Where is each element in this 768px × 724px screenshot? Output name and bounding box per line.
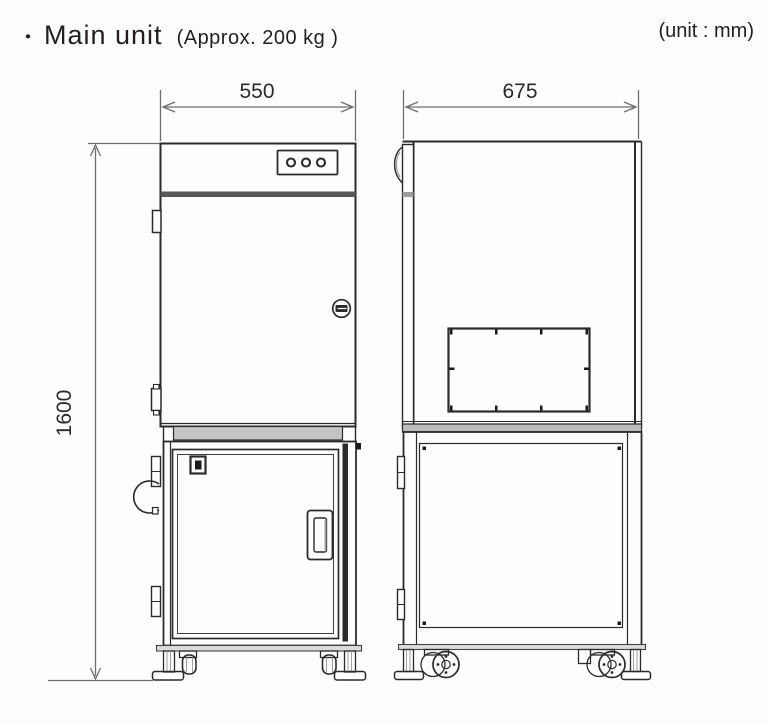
caster-icon — [421, 650, 459, 678]
unit-note: (unit : mm) — [658, 20, 754, 43]
front-bottom-rail — [157, 646, 362, 652]
side-door-edge — [395, 145, 414, 429]
front-upper-body — [161, 144, 356, 427]
side-lower-unit — [404, 432, 642, 646]
front-lower-cabinet — [164, 442, 362, 646]
vent-panel — [449, 329, 590, 412]
title-text: Main unit — [44, 20, 163, 51]
left-side-fittings — [134, 457, 161, 617]
dim-550-label: 550 — [227, 80, 287, 104]
leveling-foot-icon — [395, 650, 424, 680]
front-dark-band — [161, 192, 356, 198]
caster-icon — [321, 651, 338, 674]
page-title: ・ Main unit (Approx. 200 kg ) — [18, 20, 338, 51]
side-feet — [395, 650, 651, 680]
latch-icon — [191, 457, 206, 474]
caster-icon — [180, 651, 197, 674]
front-feet — [153, 651, 366, 680]
side-view — [395, 142, 651, 680]
control-panel — [278, 151, 338, 175]
dimension-drawing — [0, 0, 768, 724]
weight-note: (Approx. 200 kg ) — [177, 27, 339, 50]
side-bottom-rail — [399, 645, 646, 650]
technical-drawing-page: ・ Main unit (Approx. 200 kg ) (unit : mm… — [0, 0, 768, 724]
dim-1600-label: 1600 — [52, 384, 78, 442]
caster-icon — [579, 650, 626, 678]
front-ledge — [161, 424, 356, 442]
title-bullet: ・ — [18, 21, 38, 50]
dim-675-label: 675 — [490, 80, 550, 104]
door-lock-icon — [333, 300, 351, 318]
front-view — [134, 144, 366, 681]
right-frame-post — [343, 444, 349, 642]
leveling-foot-icon — [335, 651, 366, 680]
